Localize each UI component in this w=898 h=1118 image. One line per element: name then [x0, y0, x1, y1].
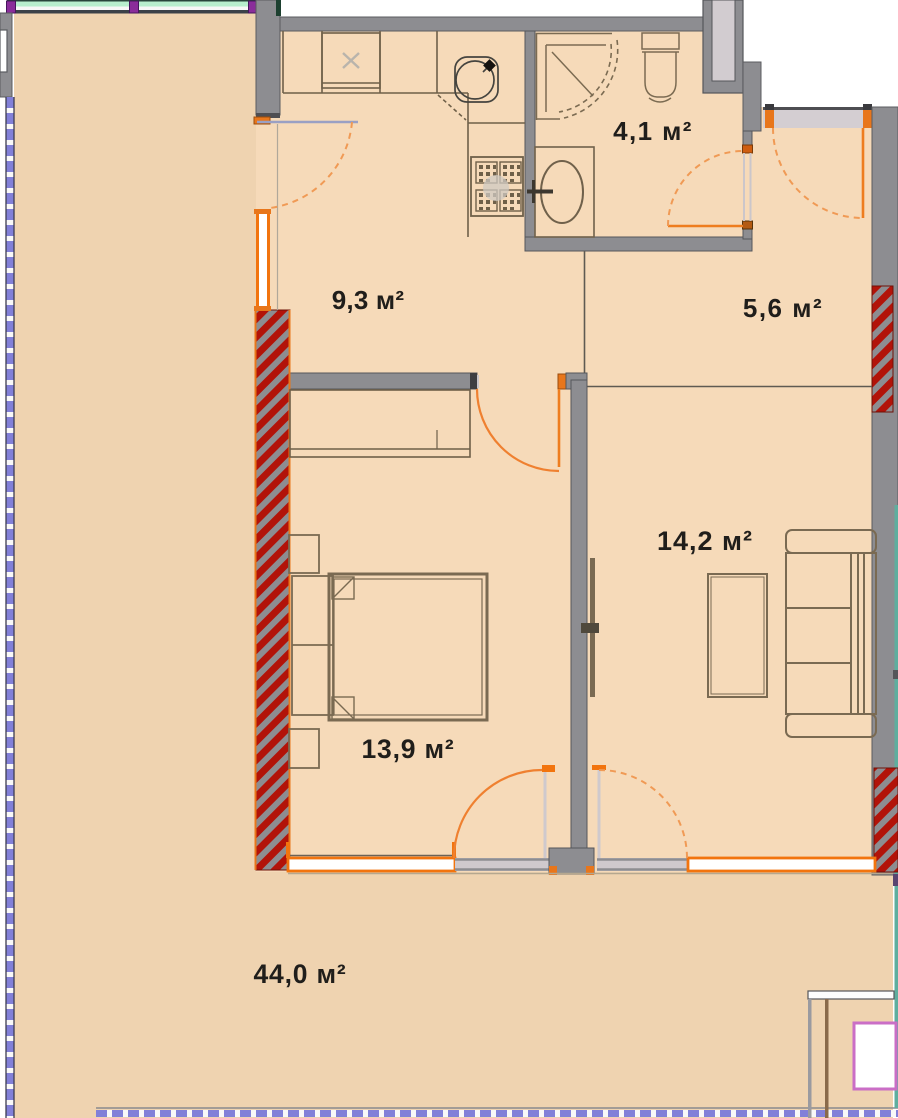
svg-text:9,3 м²: 9,3 м²: [332, 285, 405, 315]
svg-text:4,1 м²: 4,1 м²: [613, 116, 693, 146]
svg-text:14,2 м²: 14,2 м²: [657, 526, 753, 556]
svg-text:44,0 м²: 44,0 м²: [254, 959, 347, 989]
svg-text:13,9 м²: 13,9 м²: [362, 734, 455, 764]
svg-text:5,6 м²: 5,6 м²: [743, 293, 823, 323]
